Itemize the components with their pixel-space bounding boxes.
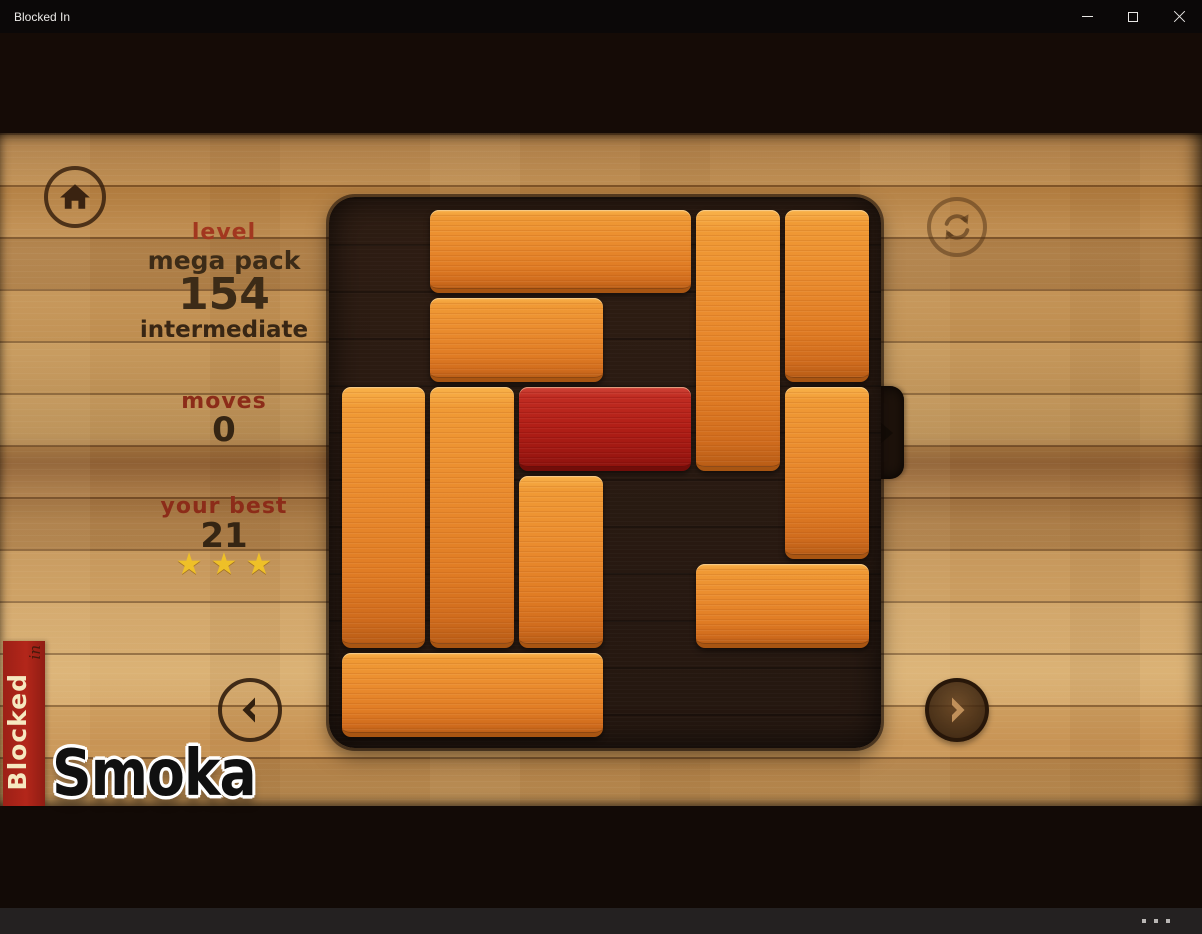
chevron-right-icon	[937, 690, 977, 730]
blocked-in-banner: Blocked in	[3, 641, 45, 806]
more-options-button[interactable]	[1142, 919, 1170, 923]
orange-block[interactable]	[785, 387, 869, 559]
refresh-icon	[938, 208, 976, 246]
dot-icon	[1154, 919, 1158, 923]
dot-icon	[1166, 919, 1170, 923]
maximize-icon	[1128, 12, 1138, 22]
home-button[interactable]	[44, 166, 106, 228]
dot-icon	[1142, 919, 1146, 923]
bottom-letterbox	[0, 806, 1202, 908]
orange-block[interactable]	[519, 476, 603, 648]
maximize-button[interactable]	[1110, 0, 1156, 33]
top-letterbox	[0, 33, 1202, 133]
banner-title: Blocked	[5, 673, 30, 790]
minimize-icon	[1082, 16, 1093, 17]
orange-block[interactable]	[696, 564, 868, 648]
orange-block[interactable]	[342, 653, 603, 737]
difficulty-label: intermediate	[124, 317, 324, 343]
moves-value: 0	[124, 410, 324, 450]
close-icon	[1173, 10, 1186, 23]
orange-block[interactable]	[696, 210, 780, 471]
restart-button[interactable]	[927, 197, 987, 257]
orange-block[interactable]	[430, 298, 602, 382]
orange-block[interactable]	[342, 387, 426, 648]
app-window: Blocked In level mega pack 154 intermedi…	[0, 0, 1202, 934]
game-board	[329, 197, 881, 748]
close-button[interactable]	[1156, 0, 1202, 33]
orange-block[interactable]	[430, 210, 691, 294]
level-number: 154	[124, 269, 324, 320]
best-stars: ★★★	[124, 547, 324, 582]
window-controls	[1064, 0, 1202, 33]
orange-block[interactable]	[430, 387, 514, 648]
status-bar	[0, 908, 1202, 934]
red-target-block[interactable]	[519, 387, 691, 471]
level-label: level	[124, 220, 324, 245]
orange-block[interactable]	[785, 210, 869, 382]
next-level-button[interactable]	[925, 678, 989, 742]
previous-level-button[interactable]	[218, 678, 282, 742]
title-bar: Blocked In	[0, 0, 1202, 33]
window-title: Blocked In	[14, 10, 70, 24]
home-icon	[58, 180, 92, 214]
minimize-button[interactable]	[1064, 0, 1110, 33]
watermark-text: Smoka	[52, 736, 256, 810]
chevron-left-icon	[230, 690, 270, 730]
banner-subtitle: in	[26, 645, 44, 659]
